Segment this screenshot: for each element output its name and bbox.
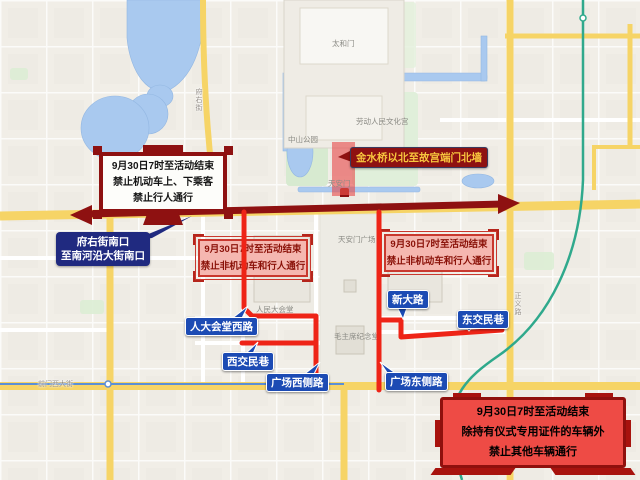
notice-line: 9月30日7时至活动结束 bbox=[386, 237, 492, 254]
notice-west-pink: 9月30日7时至活动结束 禁止非机动车和行人通行 bbox=[198, 239, 308, 277]
traffic-restriction-map: 9月30日7时至活动结束 禁止非机动车和行人通行 9月30日7时至活动结束 禁止… bbox=[0, 0, 640, 480]
road-bubble-xindalu: 新大路 bbox=[387, 290, 429, 309]
road-name-qianmen-west: 前门西大街 bbox=[38, 379, 73, 389]
station-dot bbox=[580, 15, 586, 21]
poi-tiananmen-square: 天安门广场 bbox=[338, 234, 376, 245]
road-name-fuyoujie: 府右街 bbox=[193, 88, 203, 112]
banner-knob bbox=[224, 210, 233, 219]
corner-bracket bbox=[488, 229, 499, 240]
redbox-wing bbox=[431, 468, 516, 475]
redbox-notch bbox=[626, 420, 631, 447]
notice-line: 9月30日7时至活动结束 bbox=[200, 242, 306, 259]
notice-line: 禁止非机动车和行人通行 bbox=[386, 254, 492, 271]
corner-bracket bbox=[193, 234, 204, 245]
redbox-wing bbox=[551, 468, 636, 475]
poi-great-hall: 人民大会堂 bbox=[256, 304, 294, 315]
banner-knob bbox=[93, 210, 102, 219]
road-bubble-square-west: 广场西侧路 bbox=[266, 373, 329, 392]
banner-knob bbox=[224, 146, 233, 155]
poi-working-people-palace: 劳动人民文化宫 bbox=[356, 116, 409, 127]
notice-line: 禁止行人通行 bbox=[103, 191, 223, 207]
notice-line: 禁止非机动车和行人通行 bbox=[200, 259, 306, 276]
notice-line: 除持有仪式专用证件的车辆外 bbox=[447, 423, 619, 443]
jinshuiqiao-zone-label: 金水桥以北至故宫端门北墙 bbox=[350, 147, 488, 168]
station-dot bbox=[105, 381, 111, 387]
banner-knob bbox=[93, 146, 102, 155]
corner-bracket bbox=[193, 271, 204, 282]
banner-tab-top bbox=[143, 145, 183, 153]
notice-line: 9月30日7时至活动结束 bbox=[103, 159, 223, 175]
road-name-zhengyilu: 正义路 bbox=[512, 292, 522, 316]
label-line: 府右街南口 bbox=[61, 235, 145, 249]
poi-zhongshan-park: 中山公园 bbox=[288, 134, 318, 145]
notice-southeast-red: 9月30日7时至活动结束 除持有仪式专用证件的车辆外 禁止其他车辆通行 bbox=[440, 397, 626, 468]
road-bubble-rendahuitang-west: 人大会堂西路 bbox=[185, 317, 258, 336]
notice-banner-west: 9月30日7时至活动结束 禁止机动车上、下乘客 禁止行人通行 bbox=[99, 152, 227, 213]
redbox-tab bbox=[453, 393, 481, 397]
notice-east-pink: 9月30日7时至活动结束 禁止非机动车和行人通行 bbox=[384, 234, 494, 272]
redbox-tab bbox=[585, 393, 613, 397]
notice-line: 9月30日7时至活动结束 bbox=[447, 403, 619, 423]
tiananmen-gate-icon bbox=[340, 188, 349, 197]
notice-line: 禁止机动车上、下乘客 bbox=[103, 175, 223, 191]
road-bubble-xijiaominxiang: 西交民巷 bbox=[222, 352, 274, 371]
redbox-notch bbox=[435, 420, 440, 447]
corner-bracket bbox=[379, 266, 390, 277]
road-bubble-dongjiaominxiang: 东交民巷 bbox=[457, 310, 509, 329]
label-line: 至南河沿大街南口 bbox=[61, 249, 145, 263]
poi-taihemen: 太和门 bbox=[332, 38, 355, 49]
poi-mausoleum: 毛主席纪念堂 bbox=[334, 331, 379, 342]
fuyou-street-range-label: 府右街南口 至南河沿大街南口 bbox=[56, 232, 150, 266]
corner-bracket bbox=[302, 234, 313, 245]
corner-bracket bbox=[379, 229, 390, 240]
banner-tab-bottom bbox=[143, 212, 183, 225]
notice-line: 禁止其他车辆通行 bbox=[447, 443, 619, 463]
corner-bracket bbox=[302, 271, 313, 282]
road-bubble-square-east: 广场东侧路 bbox=[385, 372, 448, 391]
corner-bracket bbox=[488, 266, 499, 277]
